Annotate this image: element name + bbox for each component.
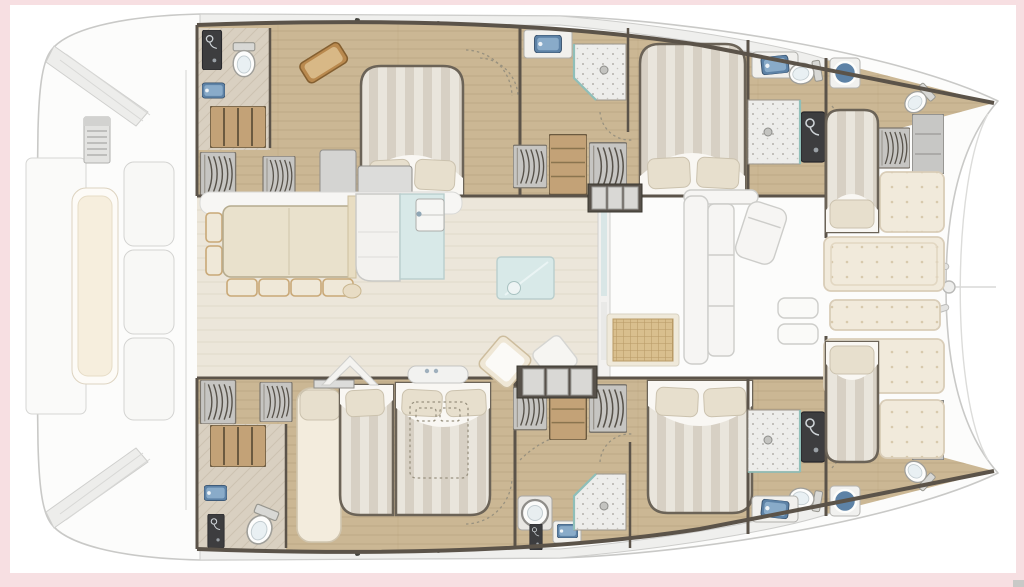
shower-panel-icon	[202, 30, 221, 70]
sun-pad	[830, 300, 940, 330]
dining-chair	[206, 213, 222, 242]
door-panel	[601, 302, 607, 360]
cabinet	[912, 114, 944, 174]
hanging-locker	[589, 143, 627, 191]
stair-tread	[547, 369, 568, 395]
sink-icon	[535, 35, 562, 53]
sink-icon	[202, 83, 225, 98]
hanging-locker	[200, 380, 235, 424]
galley-counter	[356, 194, 400, 281]
yacht-floor-plan	[0, 0, 1024, 587]
cabinet	[320, 150, 356, 196]
stair-tread	[523, 369, 544, 395]
hanging-locker	[200, 152, 235, 196]
dining-area	[206, 206, 356, 296]
shower-drain	[600, 66, 608, 74]
wicker-mat	[607, 314, 679, 366]
sun-pad	[880, 400, 944, 458]
tech-panel-icon	[801, 112, 825, 162]
cockpit-bench-back	[124, 338, 174, 420]
stair-tread	[624, 187, 638, 209]
faucet	[434, 369, 438, 373]
companionway-starboard	[588, 184, 642, 212]
faucet	[416, 211, 421, 216]
sink-icon	[204, 485, 227, 500]
pillow	[345, 389, 384, 417]
tech-panel-icon	[801, 412, 825, 462]
sun-pad	[880, 172, 944, 232]
hanging-locker	[260, 382, 292, 422]
shelf-unit	[210, 425, 266, 467]
chaise	[297, 388, 341, 542]
sliding-glass-door	[601, 212, 607, 296]
toilet-icon	[233, 43, 255, 77]
cockpit-bench-back	[124, 162, 174, 246]
shower-speckle	[748, 100, 800, 164]
counter-end	[348, 196, 356, 278]
sun-pad	[824, 237, 944, 291]
pillow	[655, 387, 698, 417]
hanging-locker	[513, 145, 547, 188]
shower-drain	[600, 502, 608, 510]
double-bed	[396, 383, 490, 515]
bow-berth-port	[826, 342, 878, 462]
stair-tread	[571, 369, 592, 395]
cup	[508, 282, 521, 295]
grill-console	[84, 117, 110, 163]
shower-speckle	[748, 410, 800, 472]
side-table	[778, 324, 818, 344]
dining-chair	[227, 279, 257, 296]
shelf-unit	[210, 106, 266, 148]
faucet	[425, 369, 429, 373]
pillow	[401, 389, 442, 417]
stool	[343, 284, 361, 298]
stair-tread	[608, 187, 622, 209]
dining-chair	[291, 279, 321, 296]
pillow	[696, 157, 740, 189]
shower-drain	[764, 128, 772, 136]
pillow	[703, 387, 746, 417]
shelf-column	[549, 135, 587, 195]
pillow	[300, 390, 340, 420]
pillow	[830, 346, 874, 374]
cockpit-bench-cushion	[72, 188, 118, 384]
shower-panel-icon	[208, 514, 224, 548]
cockpit-bench-back	[124, 250, 174, 334]
sink-bowl	[528, 506, 543, 521]
dining-chair	[259, 279, 289, 296]
aft-sink-console	[408, 366, 468, 383]
side-table	[778, 298, 818, 318]
bow-berth-starboard	[826, 110, 878, 232]
dining-chair	[206, 246, 222, 275]
island-table	[497, 257, 554, 299]
pillow	[647, 157, 691, 189]
double-bed	[340, 385, 393, 515]
hanging-locker	[878, 128, 910, 168]
pillow	[830, 200, 874, 228]
shower-drain	[764, 436, 772, 444]
pillow	[414, 159, 456, 191]
stair-tread	[592, 187, 606, 209]
corner-watermark	[1013, 580, 1024, 587]
companionway-port	[517, 366, 597, 398]
hanging-locker	[263, 156, 295, 196]
